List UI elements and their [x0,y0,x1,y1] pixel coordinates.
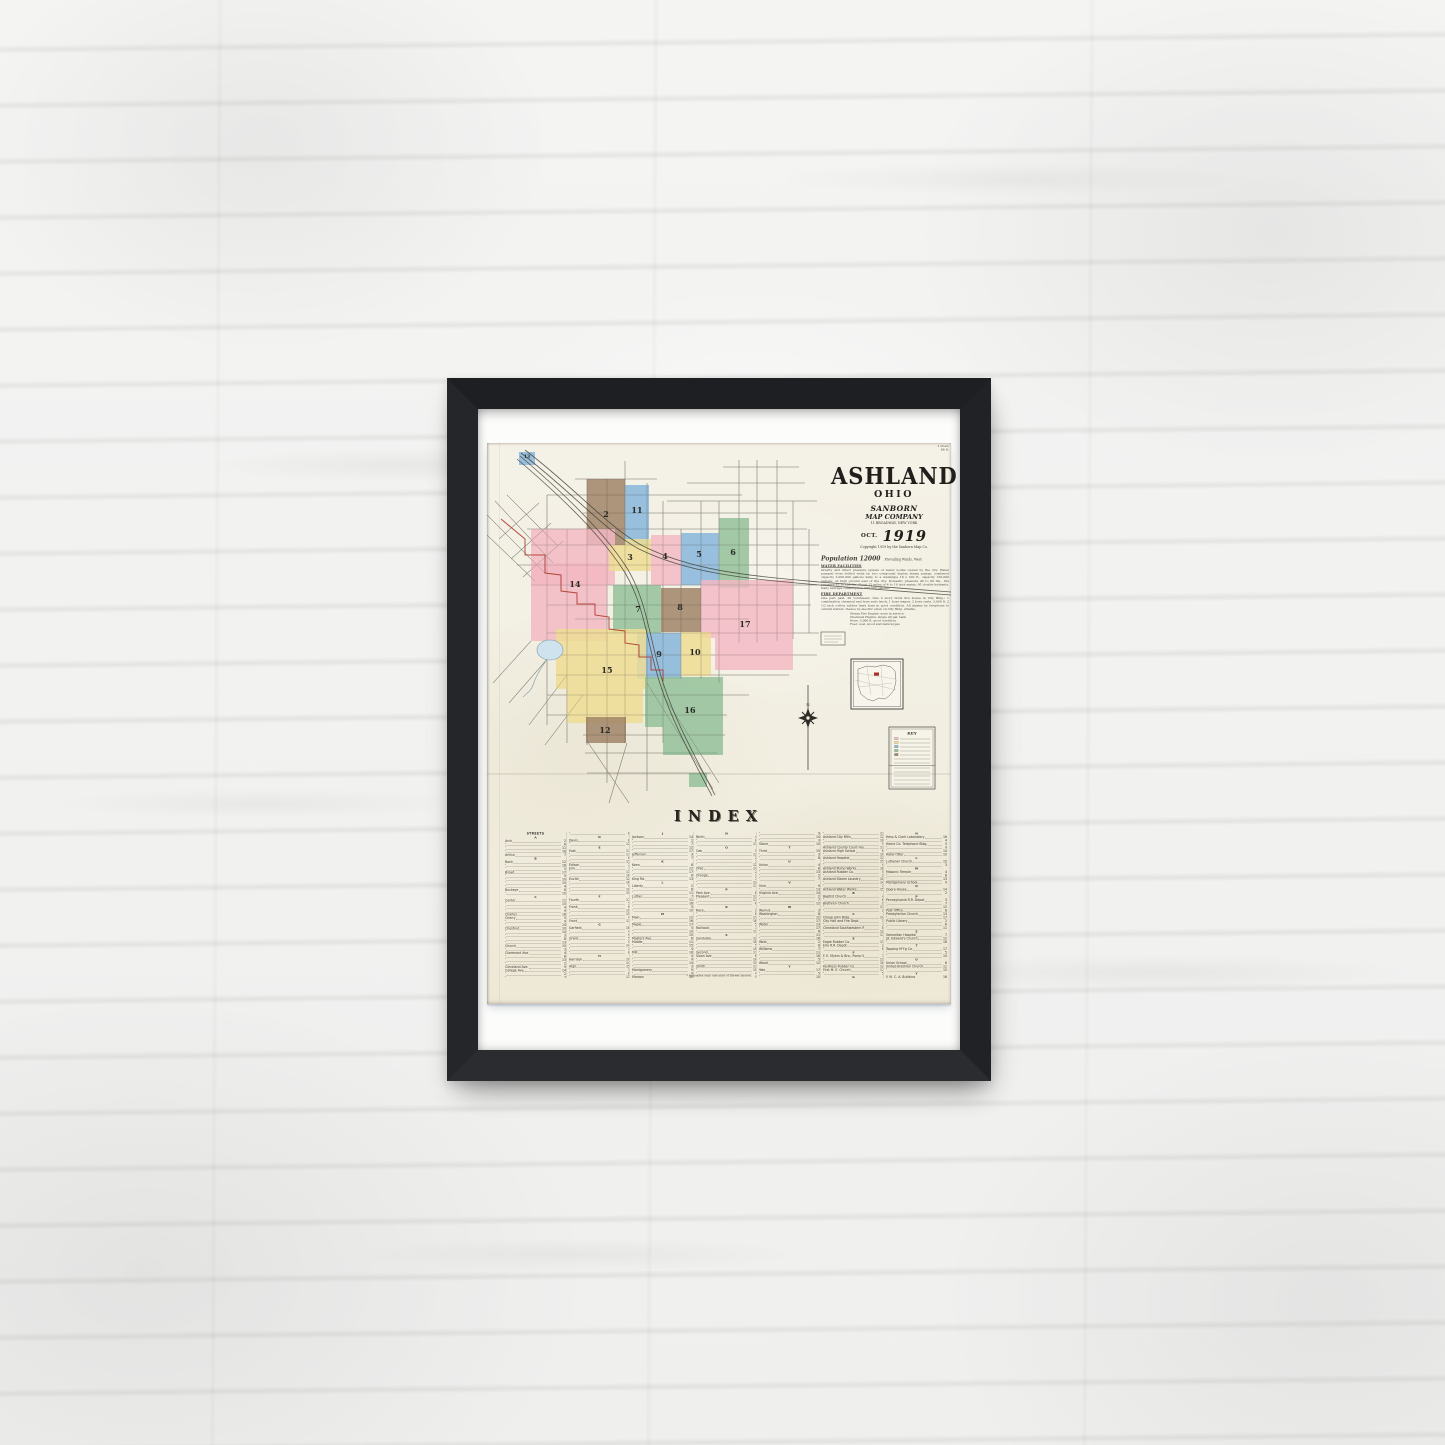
poster-mat: 132111434567817910151612 N [478,409,960,1050]
district-number: 3 [627,552,633,562]
index-column: ″9″14″3Stone10TThird15″3″8UUnion4″8″13″2… [759,832,821,978]
fire-department-heading: FIRE DEPARTMENT [821,592,949,596]
key-swatch-brown [895,753,899,755]
notes-block: Population 12000 Prevailing Winds, West … [821,555,949,655]
district-15 [556,629,646,689]
district-number: 14 [569,579,581,589]
district-number: 7 [635,604,641,614]
index-row: ″7 [505,976,566,978]
district-number: 9 [656,649,662,659]
map-state: OHIO [831,489,957,500]
map-sheet: 132111434567817910151612 N [487,443,951,1004]
index-column: JJackson14″2″7″12″17Jefferson3″7KKeen8″1… [632,832,694,978]
index-column: ″6DDavis8″12EEast13″17″6″11Edison2Elm7″1… [569,832,631,978]
copyright-line: Copyright 1919 by the Sanborn Map Co. [859,545,928,548]
district-number: 4 [662,551,668,561]
fire-list-item: Fuel: coal, wood and natural gas [850,623,949,627]
fire-department-list: Steam Fire Engine: none in serviceChemic… [821,612,949,626]
map-key-box: KEY [889,727,935,789]
date-year: 1919 [883,528,927,545]
district-number: 5 [696,549,702,559]
paper-edge-crease [499,443,500,1004]
district-number: 11 [631,505,642,515]
date-month: OCT. [861,533,877,539]
district-number: 15 [601,665,612,675]
index-column: ″11Ashland City Mills12″16″5Ashland Coun… [823,832,885,978]
index-column: NNinth4″8″13OOak9″13″2″7″12Ohio14″2Orang… [696,832,758,978]
district-11 [625,485,649,545]
index-columns: STREETSAArch2″6″11″16Arthur7BBank12″16″5… [505,832,947,978]
svg-text:KEY: KEY [907,731,917,736]
svg-text:N: N [806,702,810,707]
index-row: ″13 [569,976,630,979]
publisher-address: 11 BROADWAY, NEW YORK [859,521,928,524]
index-column: STREETSAArch2″6″11″16Arthur7BBank12″16″5… [505,832,567,978]
fire-department-text: One part paid, 20 volunteers. One 2 stor… [821,597,949,611]
key-swatch-yellow [895,741,899,743]
index-footnote: * Indicates only one side of Street show… [644,974,794,978]
compass-rose-icon: N [798,685,818,770]
district-number: 6 [730,547,736,557]
district-number: 8 [677,602,683,612]
district-5 [681,533,719,585]
district-number: 2 [603,509,609,519]
scale-corner-note: 1 Chain 66 ft. [938,445,949,452]
district-number: 12 [599,725,610,735]
map-date: OCT. 1919 [831,528,957,545]
key-swatch-pink [895,737,899,739]
water-facilities-text: Gravity and direct pressure system of wa… [821,569,949,591]
state-inset-map [851,659,903,709]
district-number: 16 [684,705,696,715]
index-column: HHess & Clark Laboratory16″4Home Co. Tel… [886,832,947,978]
district-fills [519,452,793,787]
index-title: INDEX [487,808,951,825]
population-note: Population 12000 [821,555,880,562]
index-row: Y. M. C. A. Building16 [886,976,947,979]
photo-scene: 132111434567817910151612 N [0,0,1445,1445]
district-number: 13 [524,454,530,460]
key-swatch-green [895,749,899,751]
key-swatch-blue [895,745,899,747]
district-16 [663,727,723,755]
water-facilities-heading: WATER FACILITIES [821,564,949,568]
winds-note: Prevailing Winds, West [884,558,921,562]
publisher-name-1: SANBORN [831,504,957,513]
district-number: 10 [689,647,701,657]
district-16 [645,677,723,727]
picture-frame: 132111434567817910151612 N [447,378,991,1081]
ashland-location-marker [874,673,879,676]
district-17 [701,580,793,638]
district-17 [715,638,793,670]
title-block: ASHLAND OHIO SANBORN MAP COMPANY 11 BROA… [831,465,957,550]
publisher-name-2: MAP COMPANY [831,513,957,521]
map-title: ASHLAND [831,464,957,488]
district-number: 17 [739,619,750,629]
index-letter: G [823,976,884,979]
